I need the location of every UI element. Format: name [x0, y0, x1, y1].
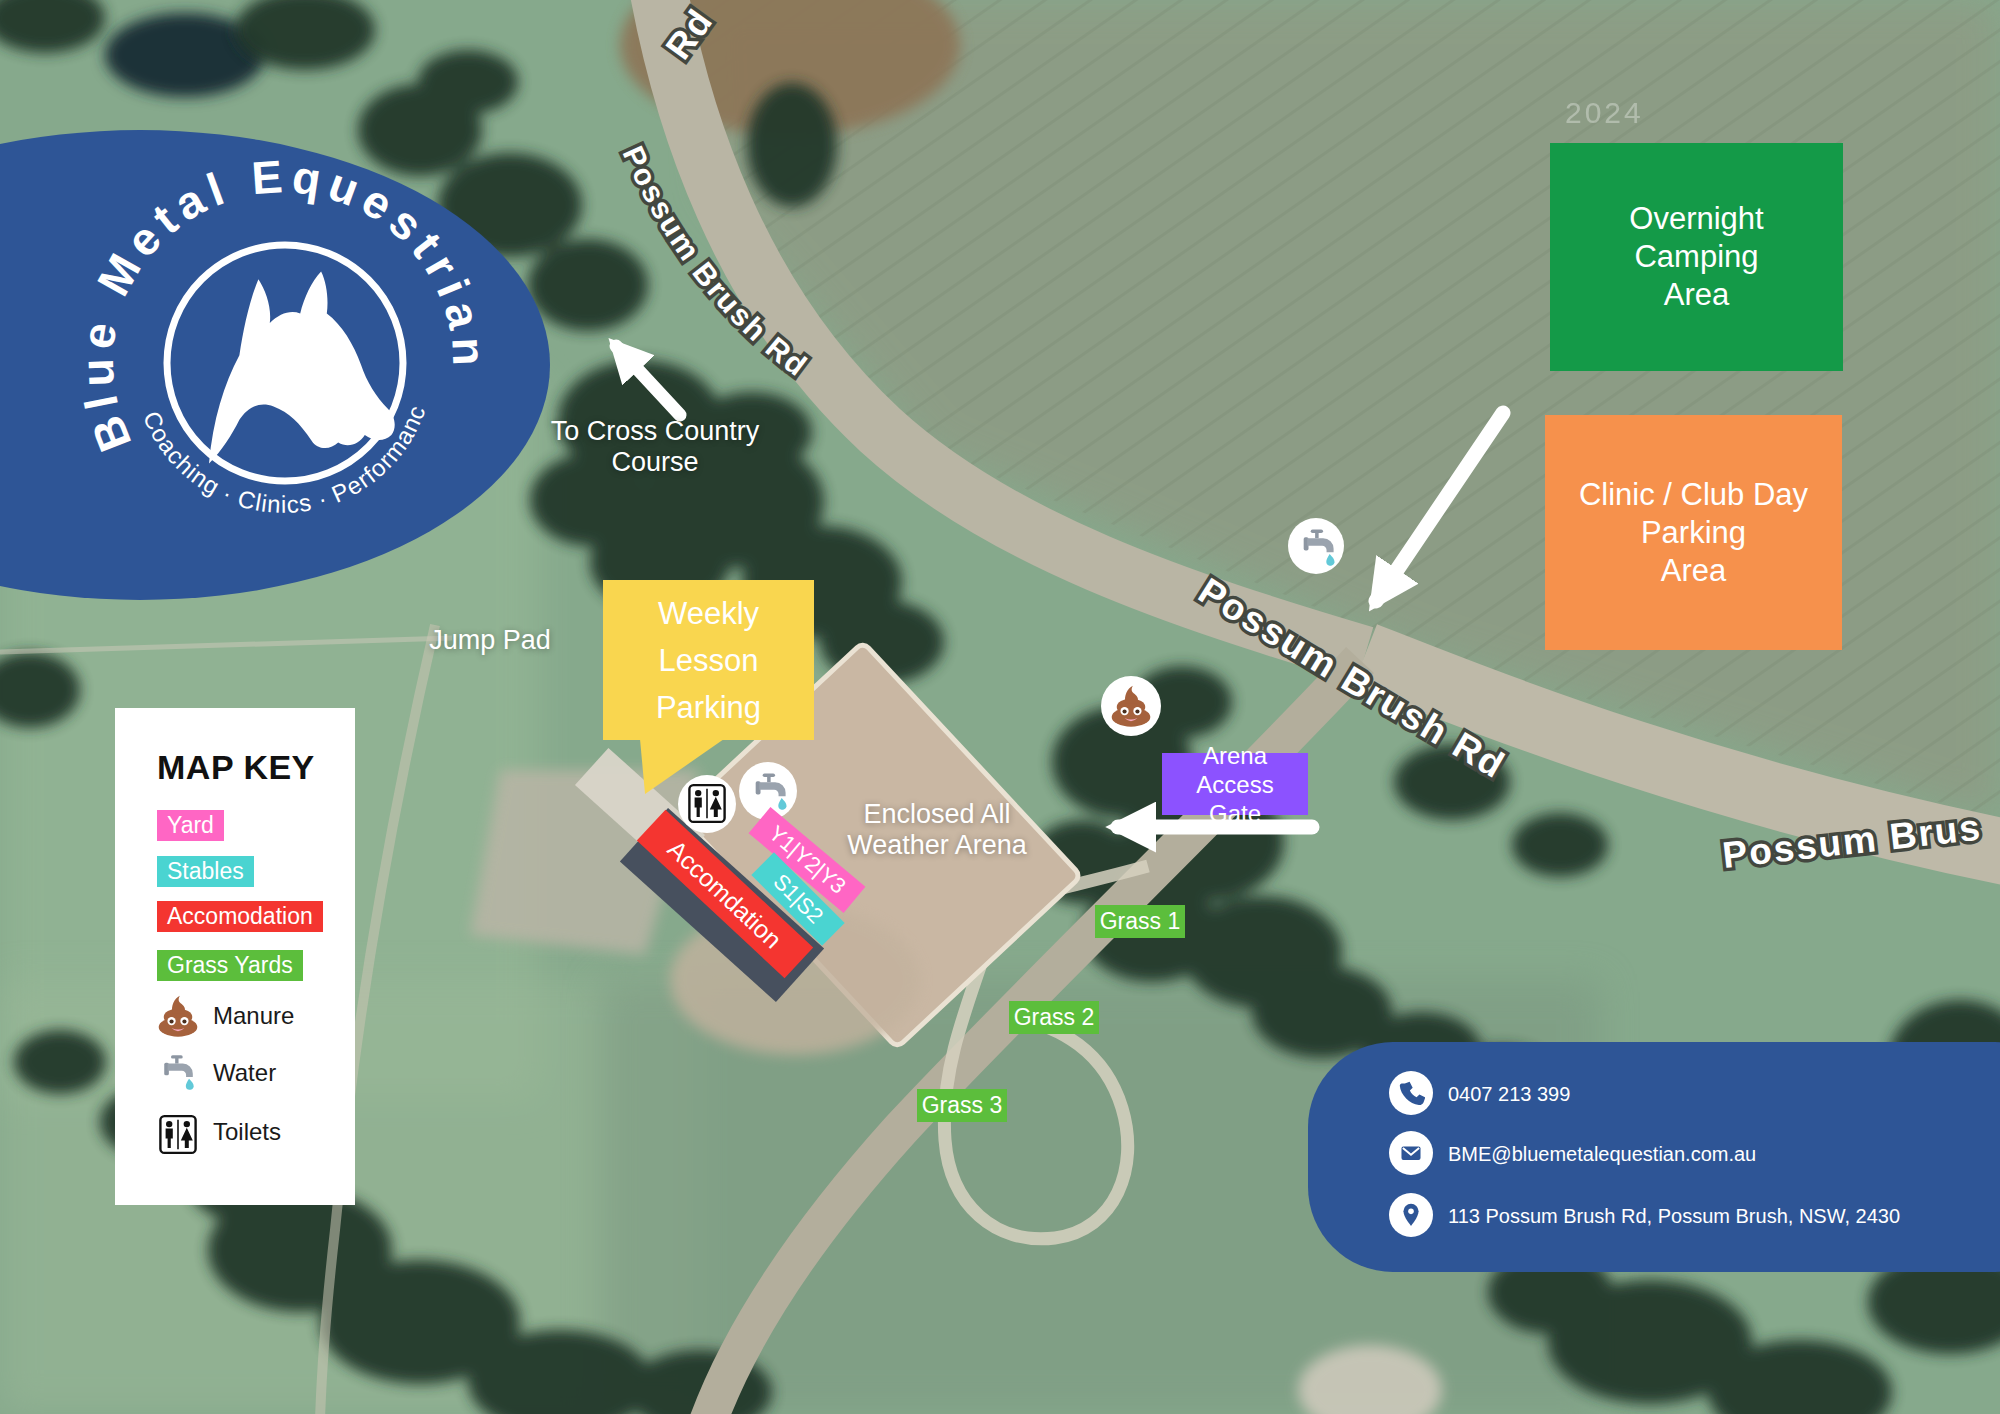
cross-country-line1: To Cross Country: [545, 416, 765, 447]
grass-2-label: Grass 2: [1009, 1001, 1099, 1034]
key-swatch-accommodation: Accomodation: [157, 901, 323, 932]
horse-head-icon: [209, 272, 395, 464]
arena-label-line2: Weather Arena: [827, 830, 1047, 861]
key-label-water: Water: [213, 1059, 276, 1087]
weekly-lesson-parking-bubble-tail: [640, 739, 724, 794]
arena-label-line1: Enclosed All: [827, 799, 1047, 830]
logo-background-blob: [0, 130, 550, 600]
contact-address: 113 Possum Brush Rd, Possum Brush, NSW, …: [1448, 1205, 1900, 1228]
cross-country-label: To Cross Country Course: [545, 416, 765, 478]
manure-icon-map: [1101, 676, 1161, 736]
weekly-line1: Weekly: [658, 590, 759, 637]
logo-tagline-text: Coaching · Clinics · Performance: [0, 0, 431, 518]
key-label-manure: Manure: [213, 1002, 294, 1030]
facility-map: Blue Metal Equestrian Coaching · Clinics…: [0, 0, 2000, 1414]
clinic-line1: Clinic / Club Day: [1579, 476, 1808, 514]
gate-line1: Arena Access: [1162, 741, 1308, 799]
arena-access-gate-box: Arena Access Gate: [1162, 753, 1308, 815]
water-icon-road: [1288, 518, 1344, 574]
grass-3-label: Grass 3: [917, 1089, 1007, 1122]
map-key-title: MAP KEY: [157, 748, 315, 787]
contact-phone: 0407 213 399: [1448, 1083, 1570, 1106]
clinic-parking-box: Clinic / Club Day Parking Area: [1545, 415, 1842, 650]
camping-line1: Overnight: [1629, 200, 1763, 238]
contact-panel: 0407 213 399 BME@bluemetalequestian.com.…: [1308, 1042, 2000, 1272]
svg-text:Coaching · Clinics · Performan: Coaching · Clinics · Performance: [0, 0, 431, 518]
road-label-rd-top: Rd: [657, 1, 721, 67]
overnight-camping-box: Overnight Camping Area: [1550, 143, 1843, 371]
svg-text:Blue Metal Equestrian: Blue Metal Equestrian: [71, 150, 496, 459]
key-label-toilets: Toilets: [213, 1118, 281, 1146]
weekly-lesson-parking-bubble: Weekly Lesson Parking: [603, 580, 814, 740]
toilets-icon: [158, 1112, 198, 1157]
email-icon: [1389, 1131, 1433, 1175]
water-icon: [155, 1051, 197, 1093]
logo-ring: [167, 245, 403, 481]
weekly-line3: Parking: [656, 684, 761, 731]
svg-text:Possum Brus: Possum Brus: [1720, 806, 1984, 876]
cross-country-line2: Course: [545, 447, 765, 478]
jump-pad-label: Jump Pad: [420, 625, 560, 656]
location-pin-icon: [1389, 1193, 1433, 1237]
map-key-panel: MAP KEY Yard Stables Accomodation Grass …: [115, 708, 355, 1205]
gate-line2: Gate: [1209, 799, 1261, 828]
key-swatch-yard: Yard: [157, 810, 224, 841]
cross-country-arrow: [616, 346, 680, 415]
phone-icon: [1389, 1071, 1433, 1115]
road-label-possum-brush-right: Possum Brus: [1720, 806, 1984, 876]
weekly-line2: Lesson: [659, 637, 759, 684]
svg-text:Rd: Rd: [657, 1, 721, 67]
manure-icon: [155, 993, 201, 1039]
contact-email: BME@bluemetalequestian.com.au: [1448, 1143, 1756, 1166]
clinic-parking-arrow: [1376, 413, 1503, 601]
arena-label: Enclosed All Weather Arena: [827, 799, 1047, 861]
svg-text:Possum Brush Rd: Possum Brush Rd: [617, 141, 815, 383]
grass-1-label: Grass 1: [1095, 905, 1185, 938]
imagery-watermark: 2024: [1565, 96, 1644, 130]
key-swatch-grass-yards: Grass Yards: [157, 950, 303, 981]
toilets-icon-map: [678, 775, 736, 833]
road-label-possum-brush-upper: Possum Brush Rd: [617, 141, 815, 383]
camping-line3: Area: [1664, 276, 1729, 314]
key-swatch-stables: Stables: [157, 856, 254, 887]
blue-metal-equestrian-logo: Blue Metal Equestrian Coaching · Clinics…: [0, 0, 620, 660]
clinic-line3: Area: [1661, 552, 1726, 590]
camping-line2: Camping: [1634, 238, 1758, 276]
clinic-line2: Parking: [1641, 514, 1746, 552]
logo-brand-text: Blue Metal Equestrian: [71, 150, 496, 459]
